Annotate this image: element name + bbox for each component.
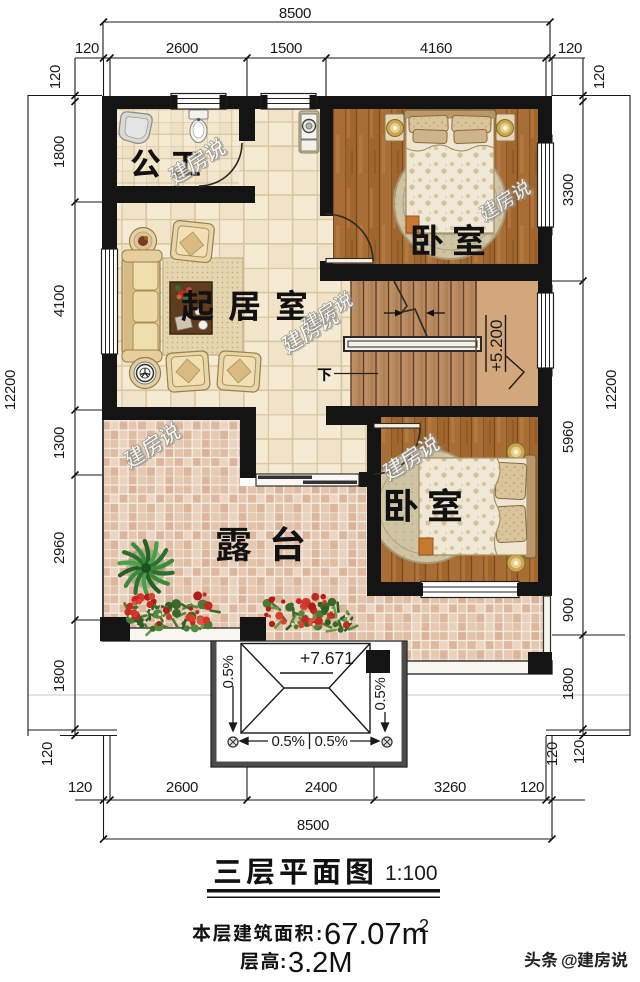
- svg-text:3300: 3300: [560, 174, 577, 206]
- svg-text:1800: 1800: [560, 668, 577, 700]
- svg-text:2: 2: [419, 916, 429, 936]
- svg-text:2960: 2960: [51, 532, 68, 564]
- svg-text:4160: 4160: [420, 40, 452, 57]
- svg-text:120: 120: [47, 65, 64, 89]
- svg-text:2600: 2600: [166, 779, 198, 796]
- svg-text:120: 120: [571, 740, 588, 764]
- svg-text:12200: 12200: [603, 370, 620, 410]
- svg-text:0.5%: 0.5%: [220, 656, 237, 689]
- svg-text:4100: 4100: [51, 285, 68, 317]
- svg-text:0.5%: 0.5%: [315, 733, 348, 750]
- svg-text:+7.671: +7.671: [300, 648, 354, 668]
- svg-text:1800: 1800: [51, 136, 68, 168]
- svg-text:120: 120: [75, 40, 99, 57]
- svg-text:3.2M: 3.2M: [288, 947, 352, 979]
- svg-text::: :: [316, 924, 322, 945]
- svg-text:3260: 3260: [434, 779, 466, 796]
- svg-text:120: 120: [39, 742, 56, 766]
- svg-text:1:100: 1:100: [385, 862, 438, 885]
- svg-text:8500: 8500: [279, 5, 311, 22]
- svg-text:120: 120: [591, 65, 608, 89]
- svg-text:120: 120: [544, 742, 561, 766]
- svg-text::: :: [280, 952, 286, 973]
- svg-text:2600: 2600: [166, 40, 198, 57]
- svg-text:0.5%: 0.5%: [372, 678, 389, 711]
- svg-text:5960: 5960: [560, 421, 577, 453]
- svg-text:67.07m: 67.07m: [324, 916, 427, 951]
- svg-text:120: 120: [520, 779, 544, 796]
- svg-text:1800: 1800: [51, 660, 68, 692]
- svg-text:@: @: [561, 951, 578, 970]
- svg-text:+5.200: +5.200: [487, 320, 506, 372]
- svg-text:8500: 8500: [297, 817, 329, 834]
- svg-text:1300: 1300: [51, 427, 68, 459]
- svg-text:12200: 12200: [2, 370, 19, 410]
- svg-text:900: 900: [560, 598, 577, 622]
- svg-text:1500: 1500: [270, 40, 302, 57]
- svg-text:120: 120: [558, 40, 582, 57]
- svg-text:0.5%: 0.5%: [272, 733, 305, 750]
- svg-text:2400: 2400: [305, 779, 337, 796]
- svg-text:120: 120: [68, 779, 92, 796]
